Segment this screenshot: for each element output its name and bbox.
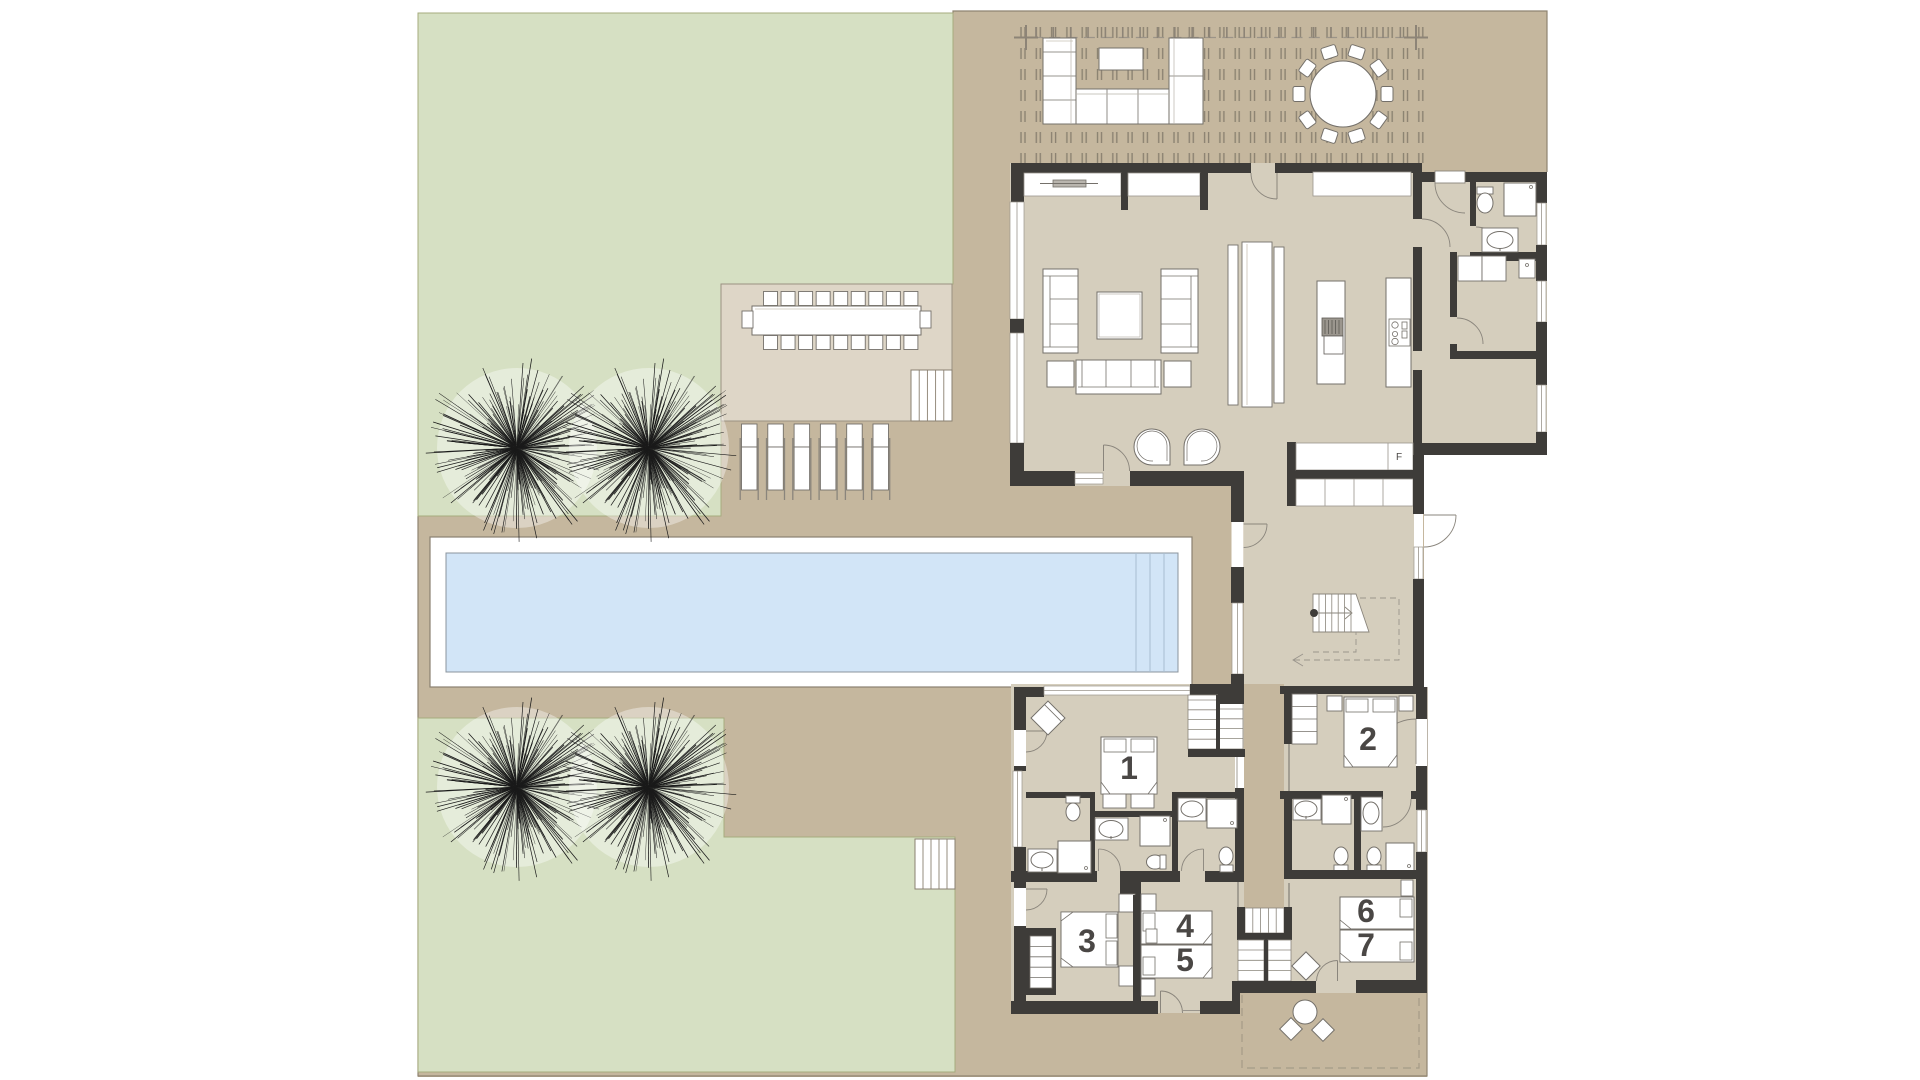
svg-text:7: 7 <box>1357 927 1375 963</box>
svg-text:1: 1 <box>1120 750 1138 786</box>
svg-text:F: F <box>1396 452 1402 463</box>
svg-text:2: 2 <box>1359 721 1377 757</box>
svg-text:4: 4 <box>1176 908 1194 944</box>
svg-text:6: 6 <box>1357 893 1375 929</box>
svg-text:3: 3 <box>1078 923 1096 959</box>
svg-text:5: 5 <box>1176 942 1194 978</box>
